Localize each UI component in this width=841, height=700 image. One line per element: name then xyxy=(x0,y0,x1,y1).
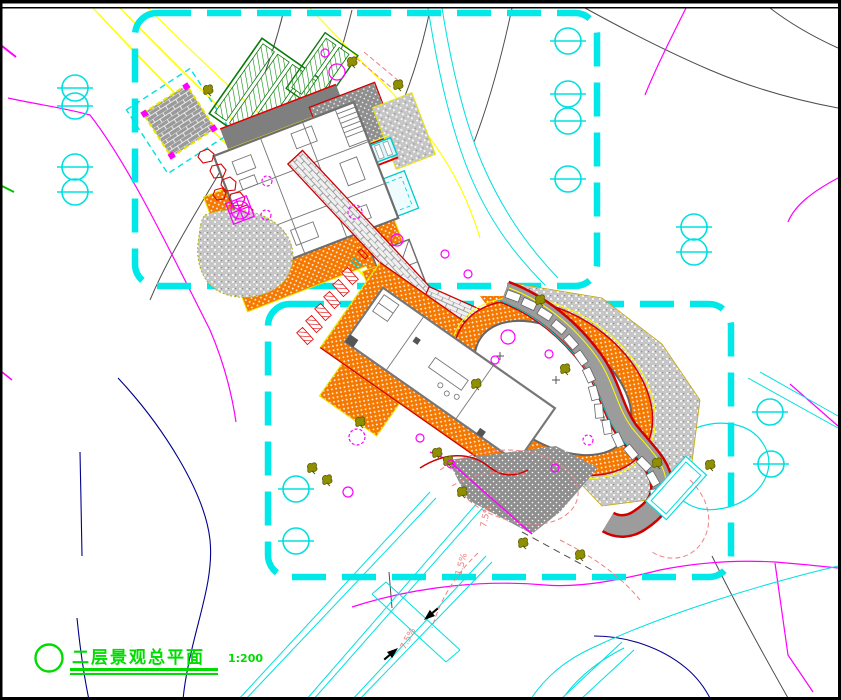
shrub-icon xyxy=(464,270,472,278)
shrub-icon xyxy=(416,434,424,442)
border-tick-marks xyxy=(2,46,16,380)
title-underline xyxy=(70,673,218,675)
tree-icon xyxy=(322,475,332,486)
survey-marker-icon xyxy=(753,451,789,477)
survey-marker-icon xyxy=(57,75,93,101)
survey-marker-icon xyxy=(550,166,586,192)
tree-icon xyxy=(203,85,213,96)
title-underline xyxy=(70,668,218,671)
slope-label: 1.5% xyxy=(454,552,470,577)
survey-marker-icon xyxy=(57,154,93,180)
tree-icon xyxy=(518,538,528,549)
title-bubble-icon xyxy=(36,645,63,672)
shrub-icon xyxy=(343,487,353,497)
survey-marker-icon xyxy=(550,81,586,107)
title-block: 二层景观总平面 1:200 xyxy=(36,645,264,676)
slope-label: 7.5% xyxy=(399,626,419,651)
shrub-icon xyxy=(441,250,449,258)
survey-marker-icon xyxy=(57,179,93,205)
site-plan-sheet: 7.5% 1.5% 7.5% xyxy=(0,0,841,700)
survey-marker-icon xyxy=(676,239,712,265)
survey-marker-icon xyxy=(550,108,586,134)
tree-icon xyxy=(307,463,317,474)
survey-marker-icon xyxy=(676,214,712,240)
tree-icon xyxy=(575,550,585,561)
survey-marker-icon xyxy=(57,93,93,119)
site-plan-drawing[interactable]: 7.5% 1.5% 7.5% xyxy=(0,0,841,700)
drawing-title: 二层景观总平面 xyxy=(72,647,205,668)
drawing-scale: 1:200 xyxy=(228,652,263,665)
tree-icon xyxy=(705,460,715,471)
shrub-icon xyxy=(349,429,365,445)
tree-icon xyxy=(347,57,357,68)
survey-marker-icon xyxy=(550,28,586,54)
tree-icon xyxy=(393,80,403,91)
survey-marker-icon xyxy=(278,476,314,502)
survey-marker-icon xyxy=(278,528,314,554)
slope-label: 7.5% xyxy=(479,504,494,529)
stream-lines xyxy=(428,8,558,285)
survey-marker-icon xyxy=(752,399,788,425)
